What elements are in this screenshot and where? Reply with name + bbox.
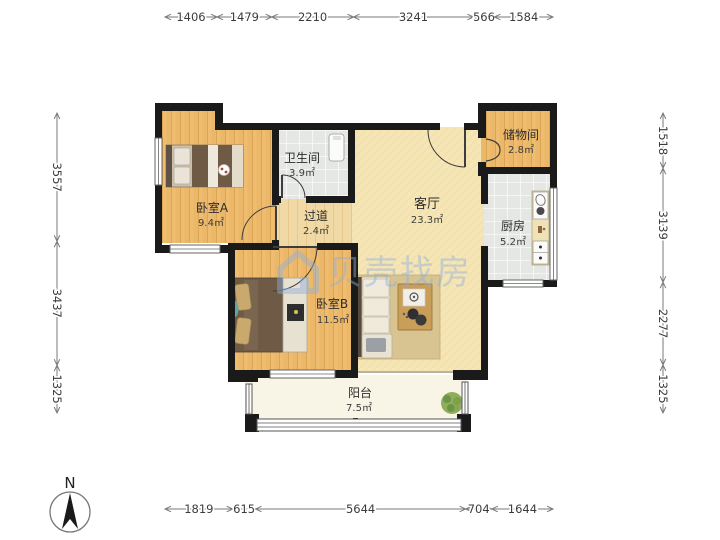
dim-label: 3557 [50,162,64,191]
dim-label: 1644 [508,502,537,516]
label-bedroom-b: 卧室B [316,296,348,311]
window-balcony-bottom [257,419,461,431]
area-hallway: 2.4㎡ [303,225,329,237]
dim-label: 566 [473,10,495,24]
label-living-room: 客厅 [414,196,440,212]
area-balcony: 7.5㎡ [346,402,372,414]
balcony-floor [245,375,467,425]
dim-label: 1584 [509,10,538,24]
area-bathroom: 3.9㎡ [289,167,315,179]
watermark-text: 贝壳找房 [328,253,472,293]
floorplan-page: 卧室A 9.4㎡ 卫生间 3.9㎡ 过道 2.4㎡ 客厅 23.3㎡ 储物间 2… [0,0,720,540]
dim-label: 5644 [346,502,375,516]
dim-label: 615 [233,502,255,516]
dim-label: 1325 [50,374,64,403]
label-bathroom: 卫生间 [284,151,320,165]
area-bedroom-b: 11.5㎡ [317,314,349,326]
area-bedroom-a: 9.4㎡ [198,217,224,229]
dim-label: 1325 [656,374,670,403]
window-bedroom-b-bottom [270,370,335,378]
label-balcony: 阳台 [348,385,372,400]
dim-label: 1406 [176,10,205,24]
compass: N [50,474,90,532]
area-living-room: 23.3㎡ [411,214,443,226]
plant [441,392,463,414]
window-balcony-right [462,382,468,414]
window-balcony-left [246,384,252,414]
label-storage: 储物间 [503,127,539,142]
floorplan-drawing: 卧室A 9.4㎡ 卫生间 3.9㎡ 过道 2.4㎡ 客厅 23.3㎡ 储物间 2… [0,0,720,540]
area-kitchen: 5.2㎡ [500,236,526,248]
sofa-blanket [366,338,386,352]
dim-label: 1479 [230,10,259,24]
slippers-decor [219,165,230,176]
label-hallway: 过道 [304,209,328,223]
washing-machine [329,134,344,161]
bed-a [166,145,243,187]
window-bedroom-a-left [155,138,162,185]
label-bedroom-a: 卧室A [196,200,229,215]
dim-label: 3139 [656,211,670,240]
dim-label: 2210 [298,10,327,24]
dim-label: 1518 [656,126,670,155]
window-bedroom-a-bottom [170,245,220,253]
dim-label: 1819 [184,502,213,516]
dim-label: 3437 [50,289,64,318]
compass-label: N [64,474,75,492]
kitchen-counter [532,191,549,265]
label-kitchen: 厨房 [501,218,525,233]
dim-label: 3241 [399,10,428,24]
dim-label: 2277 [656,309,670,338]
window-kitchen-bottom [503,280,543,287]
dim-label: 704 [468,502,490,516]
window-kitchen-right [550,188,557,280]
area-storage: 2.8㎡ [508,144,534,156]
